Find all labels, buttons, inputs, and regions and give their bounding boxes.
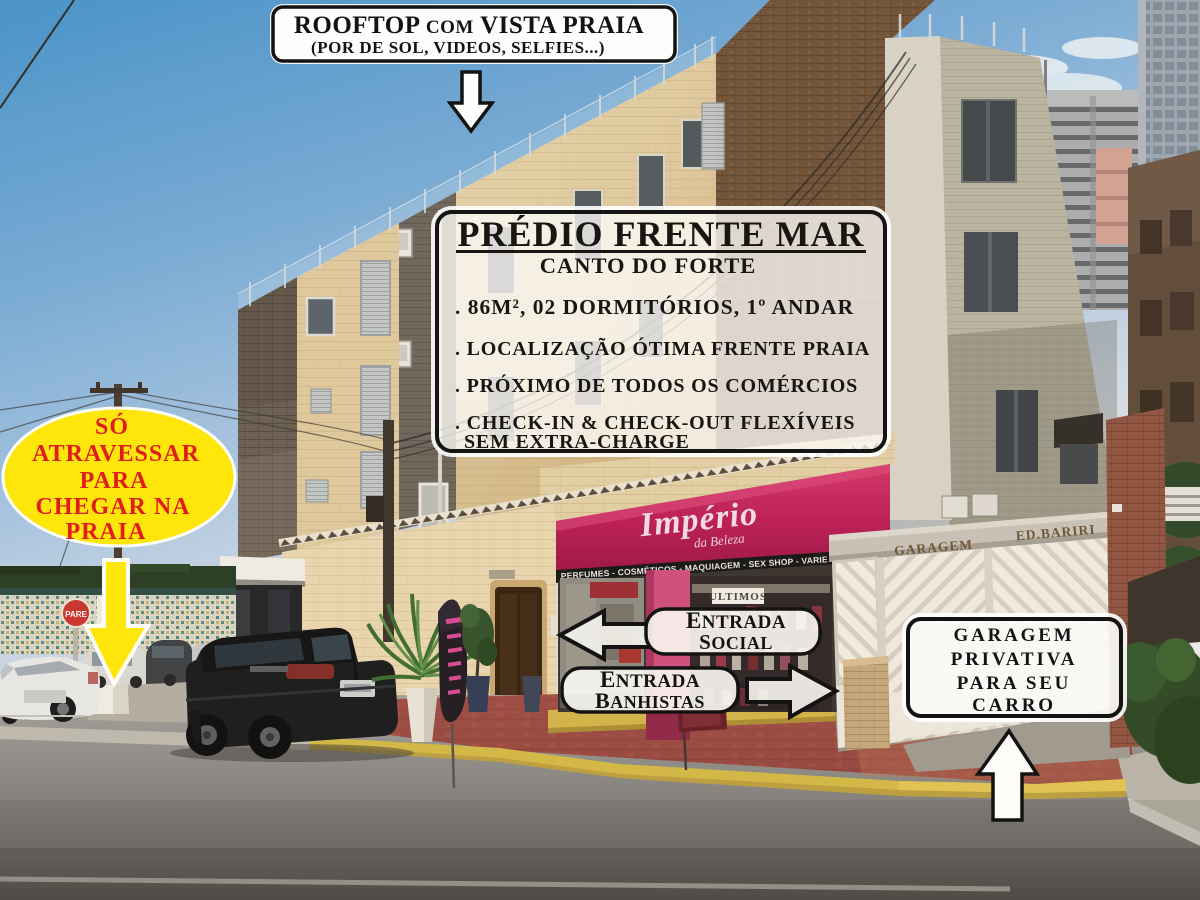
svg-text:. 86M², 02 DORMITÓRIOS, 1º AND: . 86M², 02 DORMITÓRIOS, 1º ANDAR: [455, 295, 854, 319]
svg-text:BANHISTAS: BANHISTAS: [595, 688, 705, 713]
svg-text:PRIVATIVA: PRIVATIVA: [951, 649, 1078, 670]
svg-text:PRÉDIO FRENTE MAR: PRÉDIO FRENTE MAR: [457, 214, 864, 254]
svg-text:. LOCALIZAÇÃO ÓTIMA FRENTE PRA: . LOCALIZAÇÃO ÓTIMA FRENTE PRAIA: [455, 336, 870, 360]
svg-text:ATRAVESSAR: ATRAVESSAR: [32, 441, 200, 467]
svg-text:CHEGAR NA: CHEGAR NA: [35, 494, 190, 520]
svg-text:SÓ: SÓ: [95, 413, 129, 440]
svg-text:SEM EXTRA-CHARGE: SEM EXTRA-CHARGE: [464, 431, 690, 453]
svg-text:CANTO DO FORTE: CANTO DO FORTE: [540, 253, 757, 278]
svg-text:ENTRADA: ENTRADA: [600, 667, 700, 692]
svg-text:GARAGEM: GARAGEM: [954, 625, 1075, 646]
svg-text:PARA SEU: PARA SEU: [957, 673, 1071, 694]
svg-text:ROOFTOP COM VISTA PRAIA: ROOFTOP COM VISTA PRAIA: [294, 12, 644, 39]
svg-text:(POR DE SOL, VIDEOS, SELFIES..: (POR DE SOL, VIDEOS, SELFIES...): [311, 38, 605, 57]
svg-text:. PRÓXIMO DE TODOS OS COMÉRCIO: . PRÓXIMO DE TODOS OS COMÉRCIOS: [455, 373, 858, 397]
svg-text:SOCIAL: SOCIAL: [699, 630, 773, 654]
svg-text:PRAIA: PRAIA: [66, 519, 147, 545]
svg-text:CARRO: CARRO: [972, 695, 1056, 716]
svg-text:PARA: PARA: [80, 468, 149, 494]
